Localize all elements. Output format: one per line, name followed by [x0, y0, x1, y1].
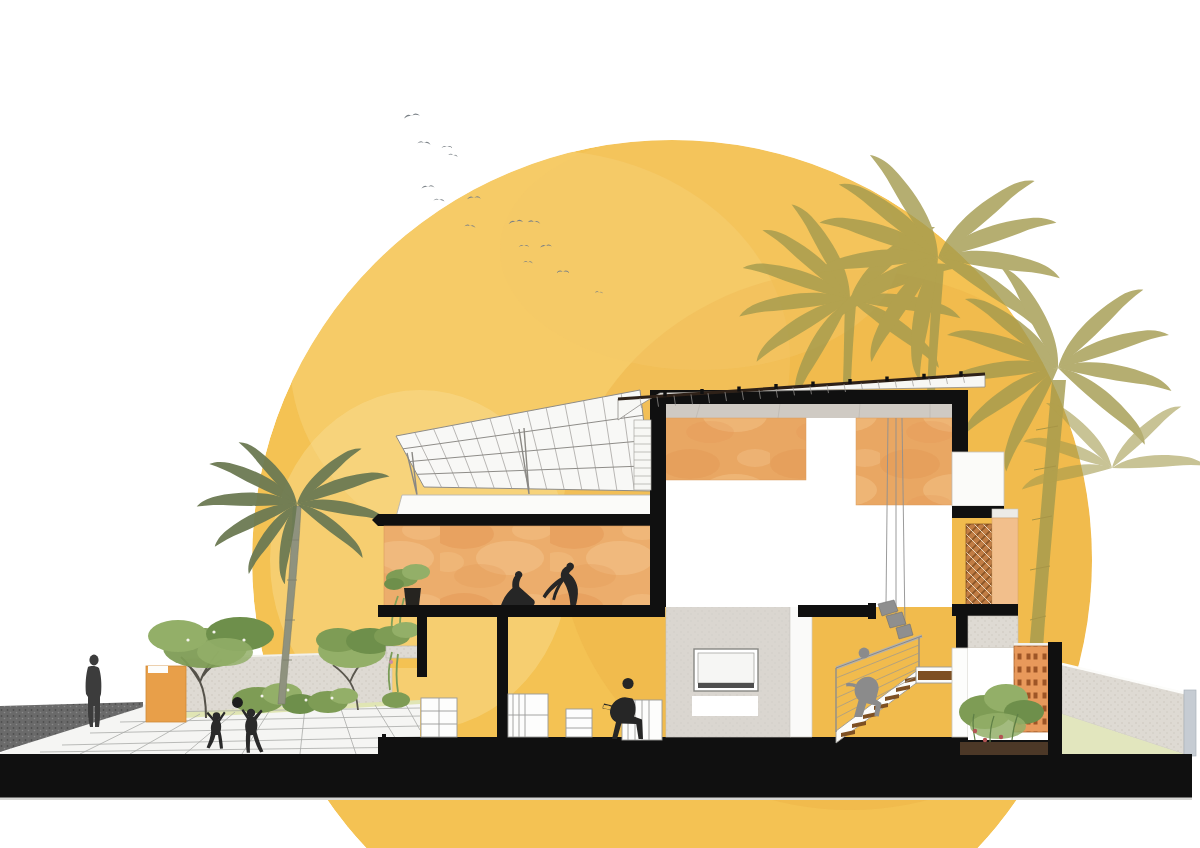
compound-wall-endcap [1184, 690, 1196, 756]
architectural-section-illustration [0, 0, 1200, 848]
courtyard [959, 642, 1062, 756]
terrace-railing [634, 420, 651, 490]
house-plinth [378, 737, 1062, 757]
verandah-furniture [421, 698, 457, 737]
ball [232, 697, 243, 708]
bird-icon [441, 146, 452, 148]
slab-end-cap [868, 603, 876, 619]
bird-icon [404, 113, 420, 119]
ground-right-wall [952, 648, 968, 737]
terrace-parapet [396, 495, 654, 517]
door-head-cut [417, 610, 427, 677]
left-wall-cut [650, 390, 666, 607]
soil-bed [960, 742, 1052, 755]
lower-concrete-beam [968, 616, 1018, 648]
slab-cut-stair-side [798, 605, 874, 617]
lower-wall-stub-cut [956, 616, 968, 648]
bird-icon [421, 185, 434, 189]
bird-icon [417, 141, 430, 145]
ceiling-soffit [665, 404, 952, 418]
roof-slab-cut [372, 514, 654, 526]
gate-pillar [146, 666, 186, 722]
bird-icon [433, 198, 444, 201]
sun-wash-crown [500, 130, 900, 370]
right-compound-wall [1062, 664, 1196, 756]
ground-band [0, 754, 1192, 798]
woven-screen [966, 524, 992, 606]
bird-icon [448, 153, 458, 157]
boundary-wall-cut [1048, 642, 1062, 756]
upper-stucco-panel-right [856, 418, 952, 505]
screen-fascia [992, 509, 1018, 518]
upper-stucco-panel-left [665, 418, 806, 480]
planter-pot [404, 588, 421, 606]
interior-wall-cut [497, 610, 508, 737]
balcony-parapet [952, 452, 1004, 506]
wall-tv [694, 649, 758, 691]
ground-underline [0, 798, 1192, 801]
lower-slab-cut [952, 604, 1018, 616]
peach-side-wall [992, 518, 1018, 608]
